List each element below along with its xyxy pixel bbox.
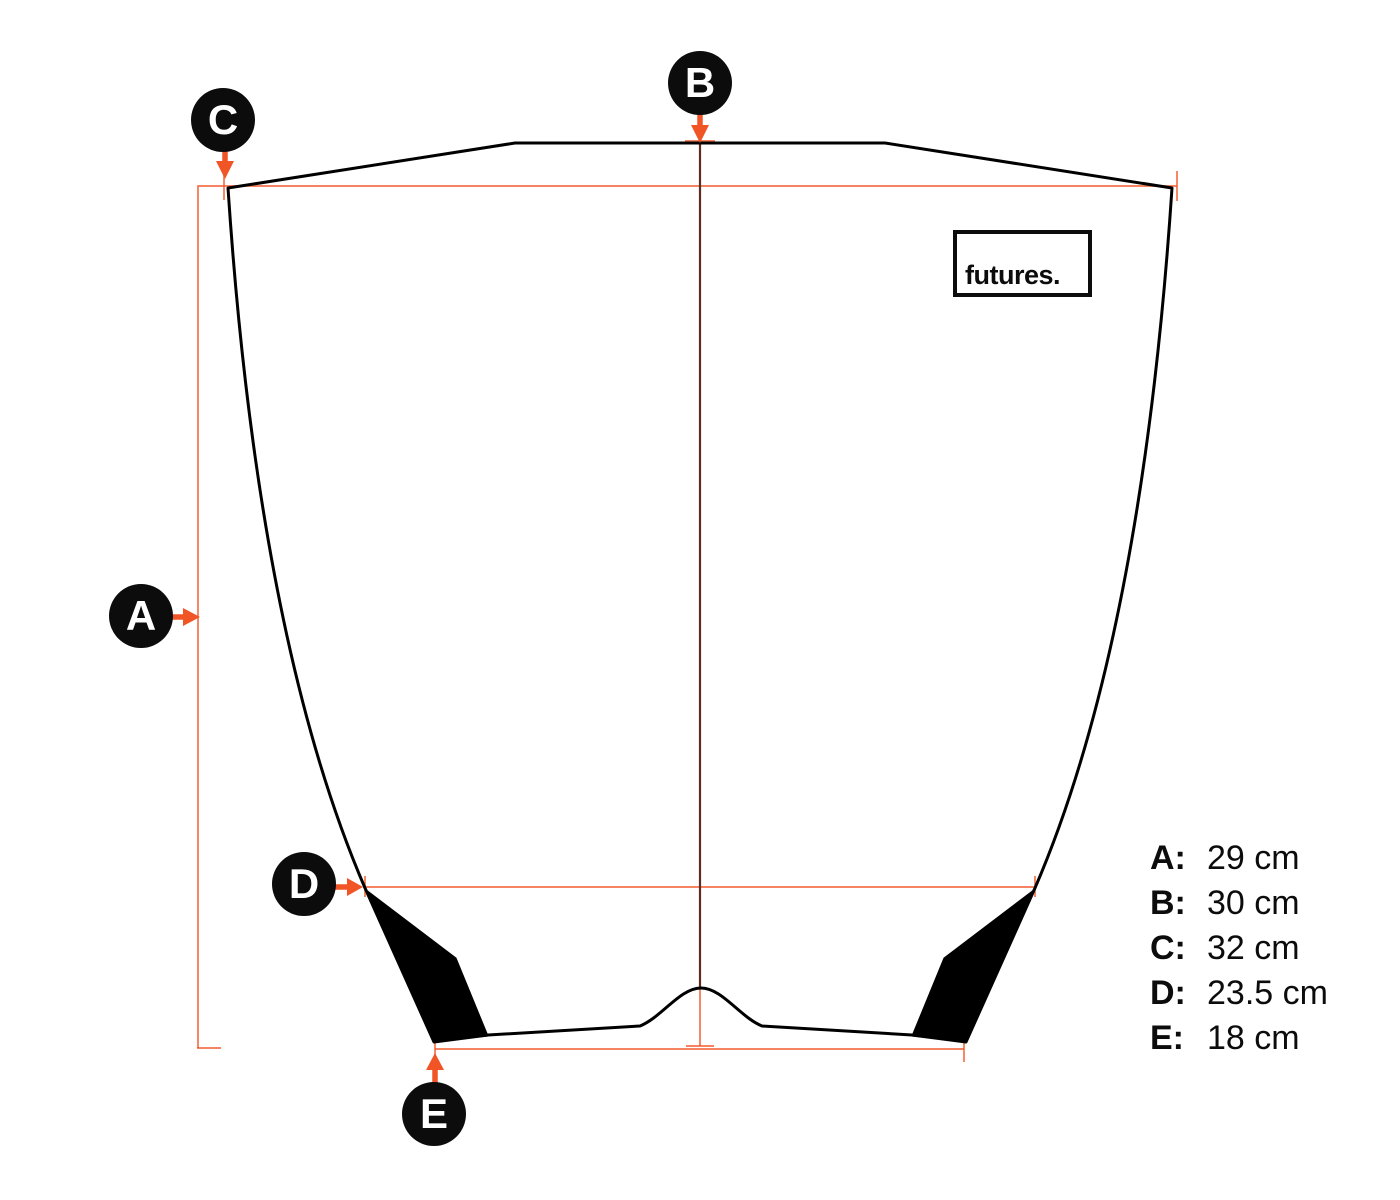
marker-badge-d: D — [272, 852, 336, 916]
marker-badge-d-label: D — [289, 863, 319, 905]
legend-row-a: A: 29 cm — [1150, 836, 1328, 881]
legend-key: B: — [1150, 884, 1207, 923]
brand-logo-text: futures. — [965, 262, 1060, 289]
legend-value: 29 cm — [1207, 839, 1300, 878]
legend-key: E: — [1150, 1019, 1207, 1058]
marker-badge-e: E — [402, 1082, 466, 1146]
arrow-down-icon-b — [691, 112, 709, 143]
legend-value: 18 cm — [1207, 1019, 1300, 1058]
traction-pad-size-diagram: A B C D E futures. A: 29 cm B: 30 cm C: … — [0, 0, 1400, 1200]
marker-badge-c: C — [191, 88, 255, 152]
marker-badge-a-label: A — [126, 595, 156, 637]
brand-logo: futures. — [953, 230, 1092, 297]
arrow-right-icon-a — [171, 608, 200, 626]
arrow-up-icon-e — [426, 1053, 444, 1083]
marker-badge-b-label: B — [685, 62, 715, 104]
marker-arrows — [171, 112, 709, 1083]
dim-line-a-and-c — [198, 186, 1177, 1048]
legend-row-e: E: 18 cm — [1150, 1016, 1328, 1061]
arrow-right-icon-d — [335, 878, 363, 896]
left-arch-wedge — [365, 889, 488, 1042]
measurements-legend: A: 29 cm B: 30 cm C: 32 cm D: 23.5 cm E:… — [1150, 836, 1328, 1061]
legend-value: 23.5 cm — [1207, 974, 1328, 1013]
legend-key: C: — [1150, 929, 1207, 968]
marker-badge-a: A — [109, 584, 173, 648]
legend-row-b: B: 30 cm — [1150, 881, 1328, 926]
legend-row-d: D: 23.5 cm — [1150, 971, 1328, 1016]
marker-badge-e-label: E — [420, 1093, 448, 1135]
legend-row-c: C: 32 cm — [1150, 926, 1328, 971]
legend-value: 32 cm — [1207, 929, 1300, 968]
legend-key: D: — [1150, 974, 1207, 1013]
legend-key: A: — [1150, 839, 1207, 878]
marker-badge-c-label: C — [208, 99, 238, 141]
right-arch-wedge — [912, 889, 1035, 1042]
legend-value: 30 cm — [1207, 884, 1300, 923]
marker-badge-b: B — [668, 51, 732, 115]
